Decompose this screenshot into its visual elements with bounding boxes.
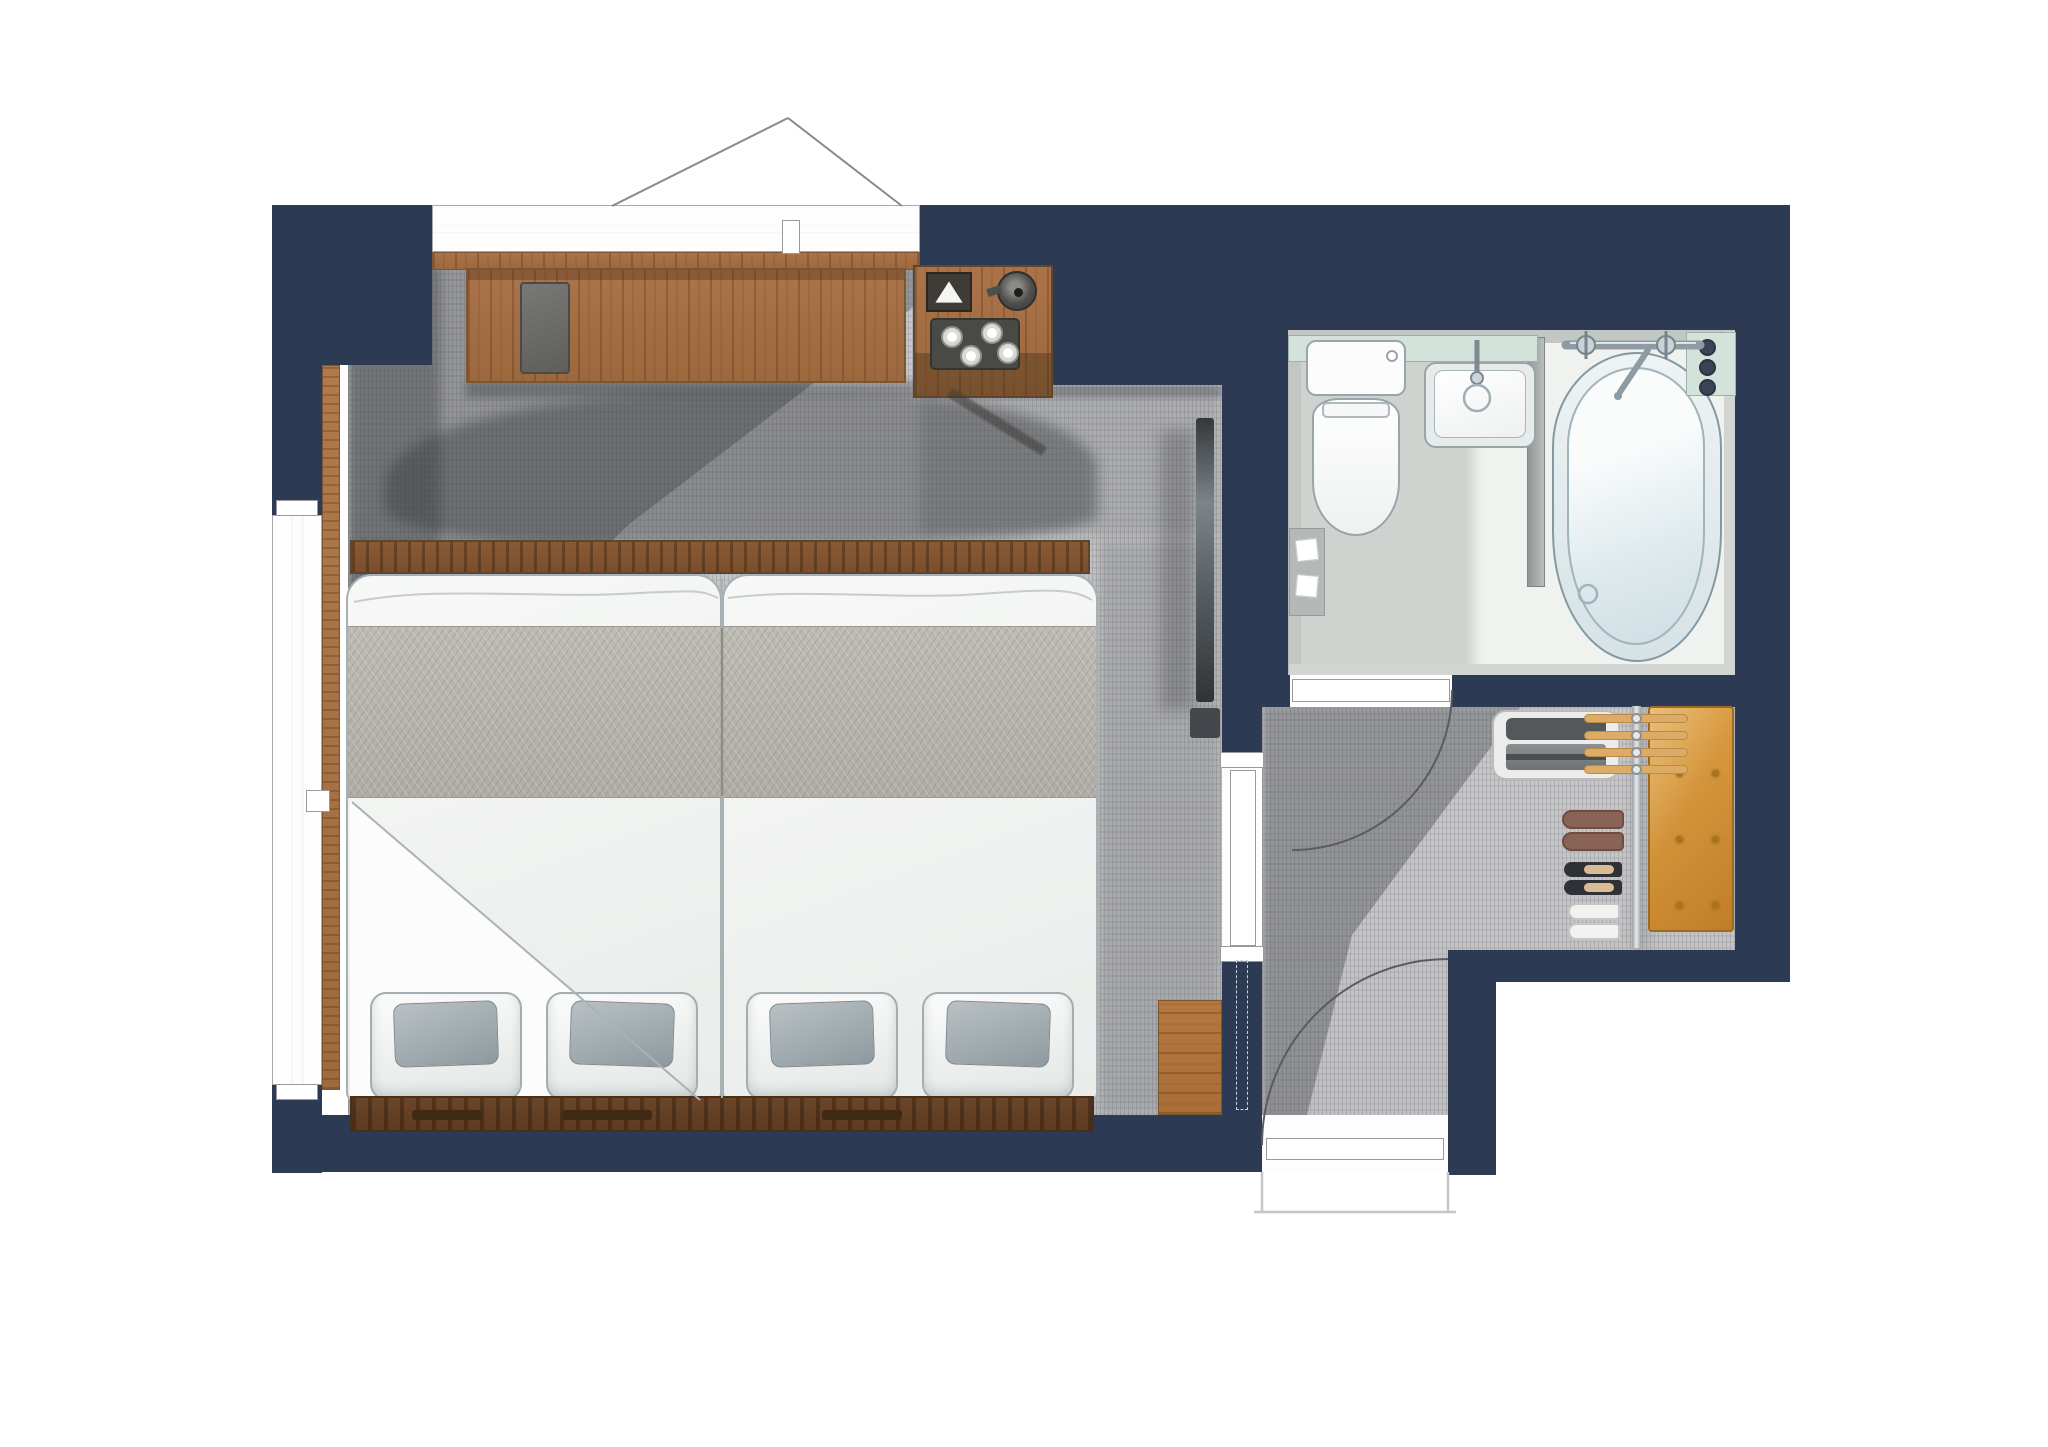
tub-overflow-drain (1579, 585, 1597, 603)
sink-faucet (1464, 340, 1490, 411)
bathroom-door-arc (1292, 690, 1452, 850)
tub-faucet (1566, 331, 1700, 603)
floor-plan (0, 0, 2048, 1447)
entrance-landing (1254, 1172, 1456, 1212)
entrance-door-arc (1262, 959, 1448, 1145)
linework-overlay (0, 0, 2048, 1447)
casement-marks (612, 118, 902, 206)
